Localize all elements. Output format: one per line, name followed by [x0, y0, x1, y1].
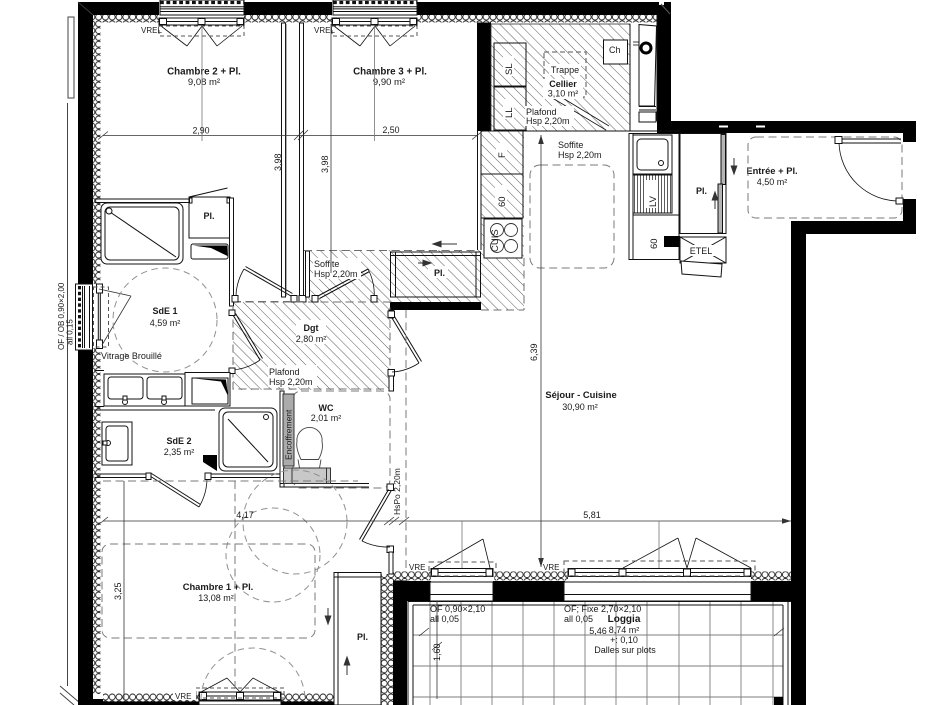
- svg-text:2,90: 2,90: [192, 126, 209, 136]
- svg-text:F: F: [497, 152, 508, 158]
- svg-text:3,98: 3,98: [273, 153, 283, 171]
- svg-text:ETEL: ETEL: [690, 246, 713, 256]
- svg-text:2,01 m²: 2,01 m²: [311, 413, 342, 423]
- svg-text:Hsp 2,20m: Hsp 2,20m: [558, 150, 602, 160]
- svg-text:HsPo 2,20m: HsPo 2,20m: [392, 468, 402, 515]
- svg-text:60: 60: [497, 196, 508, 207]
- svg-text:2,35 m²: 2,35 m²: [164, 447, 195, 457]
- svg-text:WC: WC: [319, 403, 334, 413]
- svg-text:Chambre 3 + Pl.: Chambre 3 + Pl.: [353, 67, 427, 78]
- svg-text:6,39: 6,39: [529, 343, 539, 361]
- svg-text:Chambre 2 + Pl.: Chambre 2 + Pl.: [167, 67, 241, 78]
- svg-text:2,50: 2,50: [382, 125, 399, 135]
- svg-text:Entrée + Pl.: Entrée + Pl.: [746, 165, 797, 176]
- svg-text:OF; Fixe 2,70×2,10: OF; Fixe 2,70×2,10: [564, 604, 641, 614]
- svg-text:1,60: 1,60: [432, 643, 442, 661]
- svg-text:+: 0,10: +: 0,10: [610, 635, 638, 645]
- svg-text:3,25: 3,25: [113, 582, 123, 600]
- svg-text:Vitrage Brouillé: Vitrage Brouillé: [101, 351, 162, 361]
- svg-text:SdE 2: SdE 2: [166, 436, 191, 446]
- svg-text:all 0,05: all 0,05: [430, 614, 459, 624]
- svg-text:4,50 m²: 4,50 m²: [757, 177, 788, 187]
- svg-text:9,08 m²: 9,08 m²: [188, 77, 220, 88]
- svg-text:CUIS: CUIS: [490, 229, 501, 252]
- svg-text:3,10 m²: 3,10 m²: [548, 89, 579, 99]
- svg-text:Encoffrement: Encoffrement: [284, 409, 294, 460]
- svg-text:4,59 m²: 4,59 m²: [150, 318, 181, 328]
- svg-text:Hsp 2,20m: Hsp 2,20m: [314, 269, 358, 279]
- svg-text:OF 0,90×2,10: OF 0,90×2,10: [430, 604, 485, 614]
- svg-text:9,90 m²: 9,90 m²: [373, 77, 405, 88]
- svg-text:8,74 m²: 8,74 m²: [609, 625, 640, 635]
- svg-text:VRE: VRE: [543, 563, 559, 572]
- svg-text:5,46: 5,46: [589, 626, 607, 636]
- svg-text:LV: LV: [648, 195, 659, 207]
- svg-text:4,17: 4,17: [236, 510, 254, 520]
- svg-text:5,81: 5,81: [583, 510, 601, 520]
- svg-text:Ch: Ch: [609, 45, 621, 55]
- svg-text:Séjour - Cuisine: Séjour - Cuisine: [545, 389, 616, 400]
- svg-text:3,98: 3,98: [320, 155, 330, 173]
- svg-text:all 0,15: all 0,15: [66, 319, 75, 345]
- svg-text:Soffite: Soffite: [314, 259, 339, 269]
- svg-text:Hsp 2,20m: Hsp 2,20m: [269, 377, 313, 387]
- svg-text:all 0,05: all 0,05: [564, 614, 593, 624]
- svg-text:Hsp 2,20m: Hsp 2,20m: [526, 116, 570, 126]
- svg-text:VREL: VREL: [141, 26, 162, 35]
- svg-text:Plafond: Plafond: [269, 367, 300, 377]
- svg-text:VRE: VRE: [409, 563, 425, 572]
- svg-text:60: 60: [649, 238, 660, 249]
- svg-text:Cellier: Cellier: [549, 79, 577, 89]
- svg-text:Loggia: Loggia: [608, 614, 641, 625]
- svg-text:Soffite: Soffite: [558, 140, 583, 150]
- svg-text:VREL: VREL: [314, 26, 335, 35]
- svg-text:Trappe: Trappe: [551, 65, 579, 75]
- svg-text:Dgt: Dgt: [304, 323, 319, 333]
- svg-text:Pl.: Pl.: [357, 632, 368, 642]
- svg-text:Pl.: Pl.: [696, 186, 707, 196]
- svg-text:Pl.: Pl.: [203, 211, 214, 221]
- svg-text:2,80 m²: 2,80 m²: [296, 334, 327, 344]
- svg-text:SL: SL: [504, 63, 515, 75]
- svg-text:VRE: VRE: [175, 692, 191, 701]
- svg-text:Pl.: Pl.: [434, 268, 445, 278]
- svg-text:30,90 m²: 30,90 m²: [562, 402, 598, 412]
- svg-text:Dalles sur plots: Dalles sur plots: [594, 645, 656, 655]
- svg-text:SdE 1: SdE 1: [152, 306, 177, 316]
- svg-text:Chambre 1 + Pl.: Chambre 1 + Pl.: [183, 581, 254, 592]
- svg-text:13,08 m²: 13,08 m²: [198, 593, 234, 603]
- svg-text:LL: LL: [504, 107, 515, 118]
